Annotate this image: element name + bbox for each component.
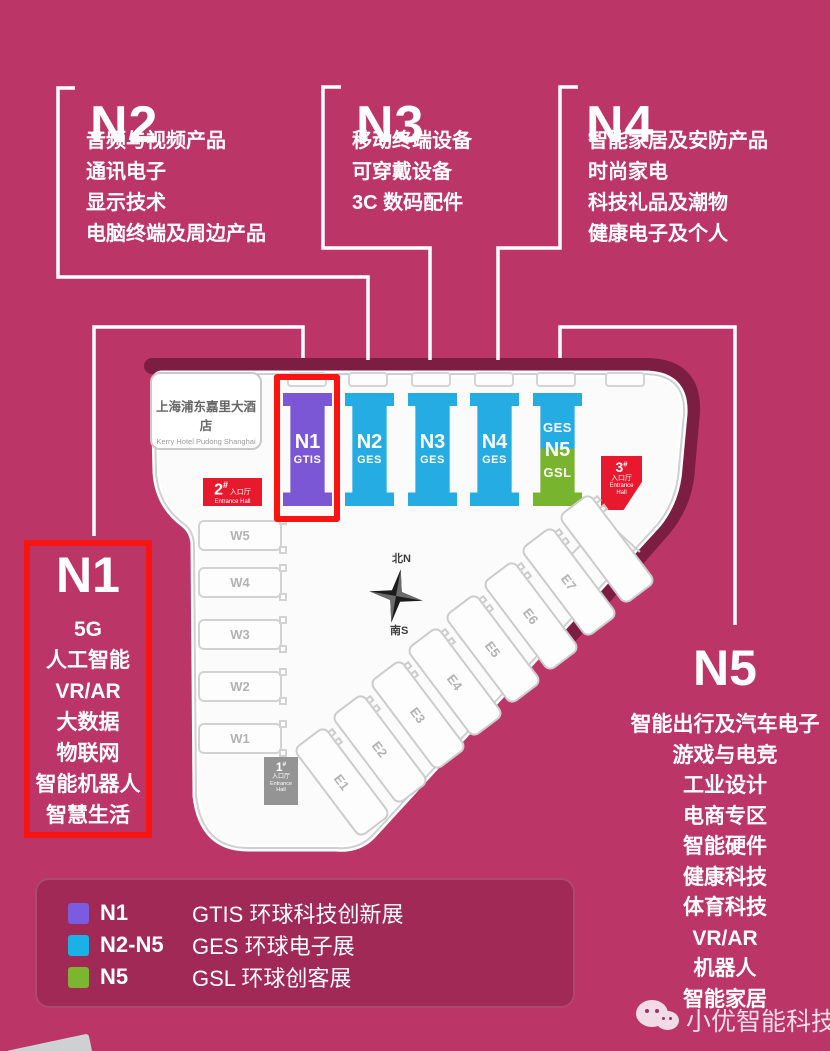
hall-n5-label: N5: [545, 440, 571, 460]
category-item: 智能硬件: [597, 832, 830, 863]
legend-label: N2-N5: [100, 932, 192, 958]
top-tab-n4: [474, 372, 514, 387]
connector-n4: [498, 87, 578, 360]
legend-label: N5: [100, 964, 192, 990]
west-hall-w3: W3: [198, 619, 282, 650]
legend-description: GTIS 环球科技创新展: [192, 897, 403, 929]
west-hall-w2: W2: [198, 671, 282, 702]
hall-n4-label: N4: [482, 432, 508, 452]
legend-swatch: [68, 935, 89, 956]
compass-south-label: 南S: [390, 622, 408, 638]
legend-description: GSL 环球创客展: [192, 961, 351, 993]
legend-row-n5: N5GSL 环球创客展: [68, 961, 573, 993]
hall-n5-top-label: GES: [543, 421, 572, 434]
exhibition-floor-plan: N2 音频与视频产品通讯电子显示技术电脑终端及周边产品 N3 移动终端设备可穿戴…: [0, 0, 830, 1051]
top-tab-n5: [536, 372, 576, 387]
compass-north-label: 北N: [392, 550, 411, 566]
category-item: 电商专区: [597, 802, 830, 833]
callout-n1-highlight-box: N1 5G人工智能VR/AR大数据物联网智能机器人智慧生活: [24, 540, 152, 838]
hall-n2: N2GES: [345, 393, 394, 506]
kerry-hotel-block: 上海浦东嘉里大酒店 Kerry Hotel Pudong Shanghai: [150, 372, 262, 450]
category-item: VR/AR: [30, 676, 146, 707]
entrance-2-number: 2#: [214, 481, 228, 499]
legend: N1GTIS 环球科技创新展N2-N5GES 环球电子展N5GSL 环球创客展: [35, 878, 575, 1008]
callout-n1-title: N1: [30, 548, 146, 602]
top-tab-n3: [411, 372, 451, 387]
west-hall-w5: W5: [198, 520, 282, 551]
hall-n3-label: N3: [420, 432, 446, 452]
west-hall-w1: W1: [198, 723, 282, 754]
callout-n5: N5 智能出行及汽车电子游戏与电竞工业设计电商专区智能硬件健康科技体育科技VR/…: [597, 642, 830, 1015]
watermark-text: 小优智能科技: [686, 1002, 830, 1038]
legend-row-n1: N1GTIS 环球科技创新展: [68, 897, 573, 929]
category-item: 工业设计: [597, 771, 830, 802]
hall-n4-sublabel: GES: [482, 454, 507, 467]
legend-swatch: [68, 967, 89, 988]
hall-n2-sublabel: GES: [357, 454, 382, 467]
hotel-name-en: Kerry Hotel Pudong Shanghai: [152, 437, 260, 446]
legend-rows: N1GTIS 环球科技创新展N2-N5GES 环球电子展N5GSL 环球创客展: [68, 897, 573, 993]
callout-n1-items: 5G人工智能VR/AR大数据物联网智能机器人智慧生活: [30, 614, 146, 831]
category-item: 智慧生活: [30, 800, 146, 831]
entrance-3-number: 3#: [601, 460, 642, 475]
category-item: 机器人: [597, 954, 830, 985]
legend-swatch: [68, 903, 89, 924]
entrance-2: 2#入口厅 Entrance Hall: [203, 478, 262, 506]
category-item: 大数据: [30, 707, 146, 738]
watermark: 小优智能科技: [636, 996, 830, 1038]
category-item: VR/AR: [597, 924, 830, 955]
legend-row-n2-n5: N2-N5GES 环球电子展: [68, 929, 573, 961]
hall-n3-sublabel: GES: [420, 454, 445, 467]
entrance-1: 1# 入口厅 Entrance Hall: [264, 757, 298, 805]
hall-n5-bottom-label: GSL: [543, 466, 571, 479]
callout-n5-items: 智能出行及汽车电子游戏与电竞工业设计电商专区智能硬件健康科技体育科技VR/AR机…: [597, 710, 830, 1015]
category-item: 智能出行及汽车电子: [597, 710, 830, 741]
category-item: 物联网: [30, 738, 146, 769]
category-item: 智能机器人: [30, 769, 146, 800]
hall-n4: N4GES: [470, 393, 519, 506]
category-item: 健康科技: [597, 863, 830, 894]
top-tab-n2: [348, 372, 388, 387]
category-item: 5G: [30, 614, 146, 645]
top-tab-gate3: [605, 372, 645, 387]
n1-hall-highlight-frame: [274, 374, 340, 522]
legend-description: GES 环球电子展: [192, 929, 355, 961]
hall-n2-label: N2: [357, 432, 383, 452]
connector-n3: [323, 87, 430, 360]
category-item: 人工智能: [30, 645, 146, 676]
west-hall-w4: W4: [198, 567, 282, 598]
category-item: 游戏与电竞: [597, 741, 830, 772]
hall-n3: N3GES: [408, 393, 457, 506]
entrance-1-number: 1#: [264, 761, 298, 774]
wechat-icon: [636, 996, 684, 1036]
legend-label: N1: [100, 900, 192, 926]
hotel-name-cn: 上海浦东嘉里大酒店: [152, 396, 260, 434]
callout-n5-title: N5: [597, 642, 830, 694]
category-item: 体育科技: [597, 893, 830, 924]
